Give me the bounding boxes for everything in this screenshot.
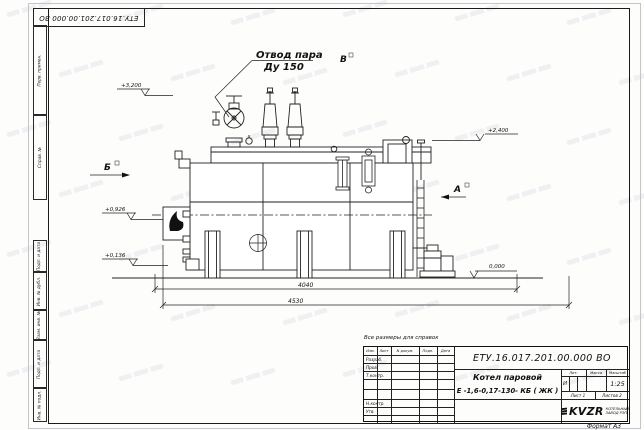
vent-valve (246, 135, 252, 144)
elevation-label-0926: +0,926 (105, 207, 126, 213)
col-list: Лист (377, 347, 391, 355)
elevation-label-3200: +3,200 (121, 83, 142, 89)
row-tkontr: Т.контр. (364, 371, 391, 379)
col-podp: Подп. (419, 347, 437, 355)
logo-caption-line2: ЗАВОД РЭП (606, 411, 629, 415)
view-label-v: В (340, 55, 347, 65)
title-designation: ЕТУ.16.017.201.00.000 ВО (455, 347, 629, 369)
rear-hatch (383, 137, 412, 164)
row-razrab: Разраб. (364, 355, 391, 363)
view-label-a: А (453, 185, 461, 195)
mass-label: Масса (586, 369, 606, 376)
ladder (417, 180, 424, 277)
callout-line1: Отвод пара (256, 50, 323, 61)
elevation-label-0136: +0,136 (105, 253, 126, 259)
row-utv: Утв. (364, 407, 391, 415)
drawing-sheet: ЕТУ.16.017.201.00.000 ВО Перв. примен. С… (0, 0, 644, 430)
lit-value: И (561, 376, 569, 391)
safety-valve-1 (262, 88, 278, 147)
row-nkontr: Н.контр. (364, 399, 391, 407)
sheet-number: Лист 1 (561, 391, 595, 399)
col-izm: Изм. (364, 347, 377, 355)
elevation-label-0000: 0,000 (489, 264, 505, 270)
view-label-b: Б (104, 163, 111, 173)
safety-valve-2 (287, 88, 303, 147)
scale-label: Масштаб (606, 369, 629, 376)
reference-note: Все размеры для справок (364, 335, 439, 341)
dimension-label-inner: 4040 (298, 282, 313, 289)
scale-value: 1:25 (606, 376, 629, 391)
elevation-label-2400: +2,400 (488, 128, 509, 134)
drain-fitting (186, 259, 199, 270)
product-name-line2: Е -1,6-0,17-130- КБ ( ЖК ) (454, 384, 561, 397)
callout-line2: Ду 150 (263, 62, 304, 73)
logo-text: KVZR (569, 405, 604, 418)
col-ndoc: N докум. (391, 347, 419, 355)
kvzr-logo-icon (561, 406, 567, 417)
title-block: Изм. Лист N докум. Подп. Дата Разраб. Пр… (363, 346, 628, 422)
format-note: Формат А3 (580, 423, 628, 430)
sheets-total: Листов 2 (595, 391, 629, 399)
view-marker-v-square (349, 53, 353, 57)
product-name-line1: Котел паровой (454, 370, 561, 385)
lit-label: Лит. (561, 369, 586, 376)
dimension-label-outer: 4530 (288, 298, 303, 305)
front-elbow (175, 151, 190, 168)
col-data: Дата (437, 347, 454, 355)
company-cell: KVZR КОТЕЛЬНЫЙ ЗАВОД РЭП (561, 399, 629, 423)
row-prov: Пров. (364, 363, 391, 371)
burner (163, 207, 190, 262)
steam-outlet-valve (212, 96, 244, 147)
feed-pump (413, 245, 455, 277)
